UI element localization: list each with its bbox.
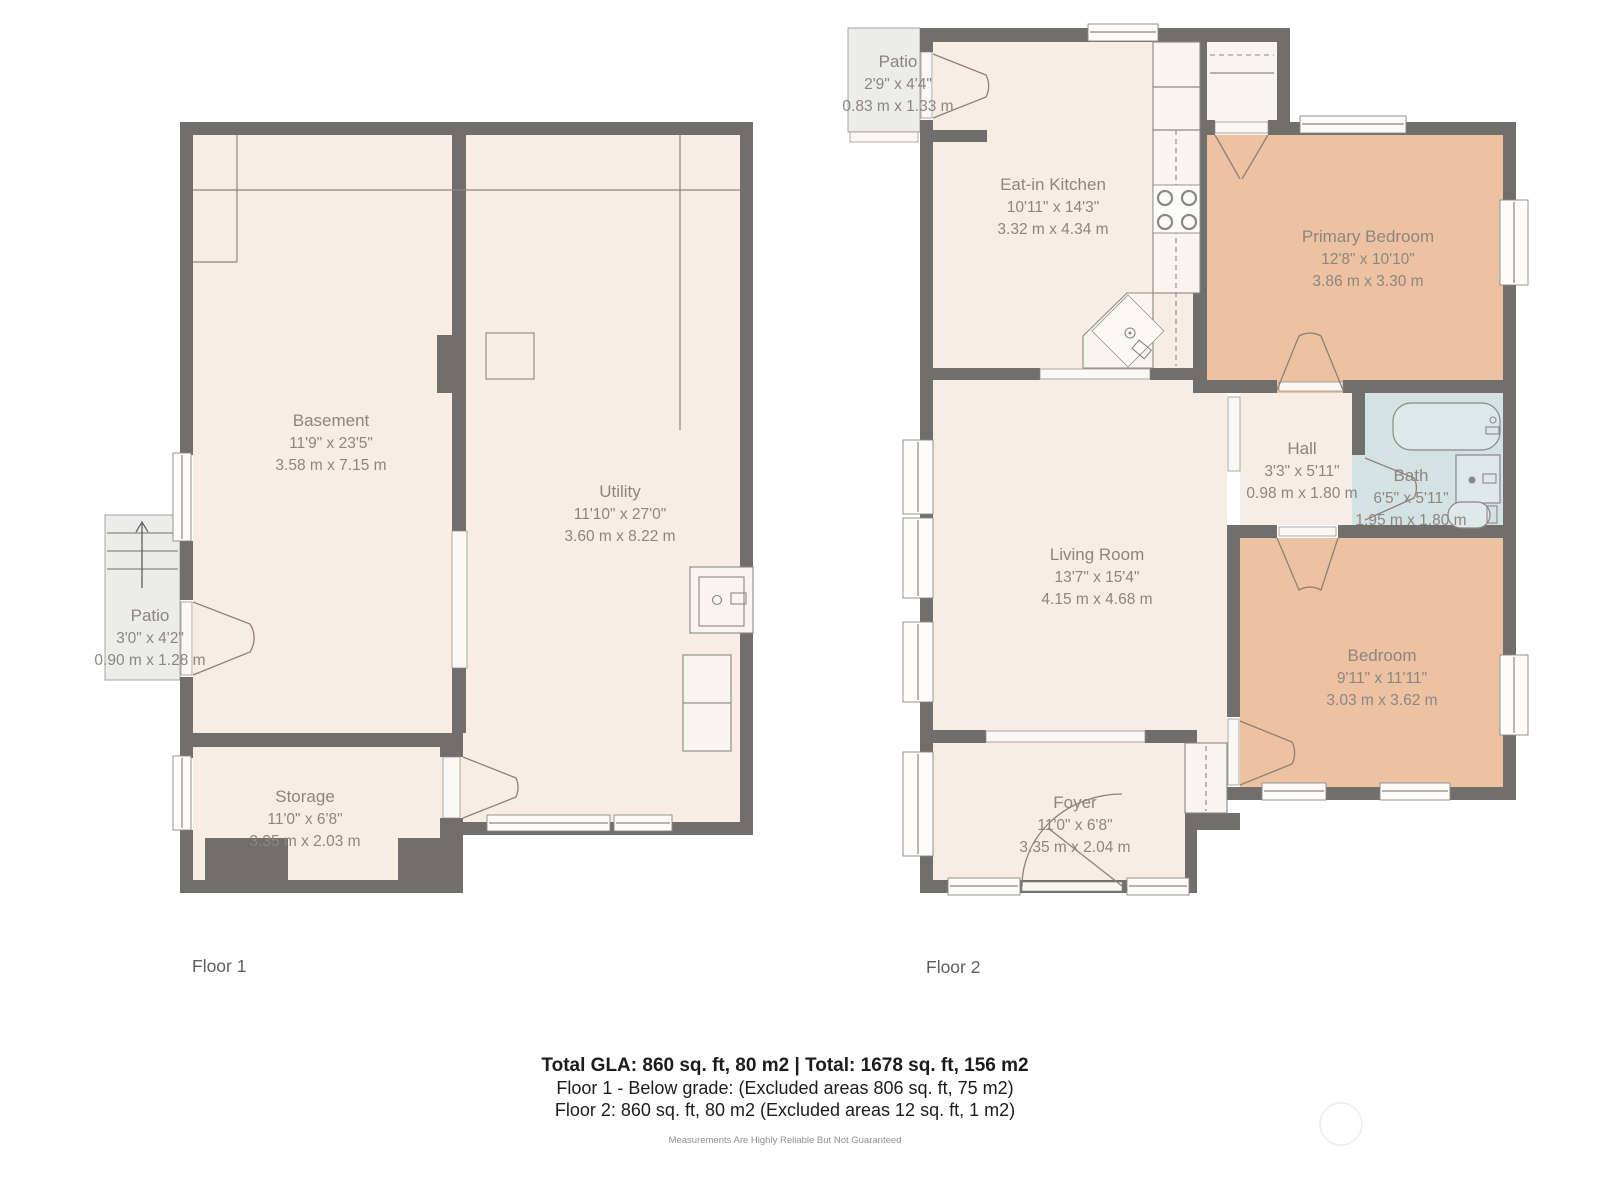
washer-dryer-icon bbox=[683, 655, 731, 751]
room-label-primary-bedroom: Primary Bedroom 12'8" x 10'10" 3.86 m x … bbox=[1302, 225, 1434, 293]
room-label-patio-floor2: Patio 2'9" x 4'4" 0.83 m x 1.33 m bbox=[842, 50, 953, 118]
closet-floor bbox=[1207, 42, 1277, 135]
footer-floor1-note: Floor 1 - Below grade: (Excluded areas 8… bbox=[0, 1077, 1570, 1099]
foyer-closet bbox=[1185, 743, 1227, 813]
floor2-plan bbox=[848, 24, 1528, 895]
furnace-icon bbox=[486, 333, 534, 379]
floor1-label: Floor 1 bbox=[192, 956, 246, 977]
room-label-bedroom: Bedroom 9'11" x 11'11" 3.03 m x 3.62 m bbox=[1326, 644, 1437, 712]
room-label-patio-floor1: Patio 3'0" x 4'2" 0.90 m x 1.28 m bbox=[94, 604, 205, 672]
footer-total-gla: Total GLA: 860 sq. ft, 80 m2 | Total: 16… bbox=[0, 1055, 1570, 1077]
room-label-utility: Utility 11'10" x 27'0" 3.60 m x 8.22 m bbox=[564, 480, 675, 548]
footer-floor2-note: Floor 2: 860 sq. ft, 80 m2 (Excluded are… bbox=[0, 1099, 1570, 1121]
room-label-foyer: Foyer 11'0" x 6'8" 3.35 m x 2.04 m bbox=[1019, 791, 1130, 859]
floor2-label: Floor 2 bbox=[926, 957, 980, 978]
basement-utility-opening bbox=[452, 531, 467, 668]
room-label-kitchen: Eat-in Kitchen 10'11" x 14'3" 3.32 m x 4… bbox=[997, 173, 1108, 241]
room-label-living-room: Living Room 13'7" x 15'4" 4.15 m x 4.68 … bbox=[1041, 543, 1152, 611]
stove-icon bbox=[1153, 185, 1200, 233]
room-label-basement: Basement 11'9" x 23'5" 3.58 m x 7.15 m bbox=[275, 409, 386, 477]
floorplan-drawing bbox=[0, 0, 1600, 1200]
room-label-storage: Storage 11'0" x 6'8" 3.35 m x 2.03 m bbox=[249, 785, 360, 853]
bathtub-icon bbox=[1393, 403, 1500, 450]
floorplan-canvas: Basement 11'9" x 23'5" 3.58 m x 7.15 m U… bbox=[0, 0, 1600, 1200]
living-foyer-opening bbox=[986, 731, 1145, 742]
living-hall-opening bbox=[1228, 397, 1240, 471]
kitchen-living-opening bbox=[1040, 369, 1150, 379]
footer-disclaimer: Measurements Are Highly Reliable But Not… bbox=[0, 1135, 1570, 1146]
room-label-bath: Bath 6'5" x 5'11" 1.95 m x 1.80 m bbox=[1355, 464, 1466, 532]
room-label-hall: Hall 3'3" x 5'11" 0.98 m x 1.80 m bbox=[1246, 437, 1357, 505]
laundry-sink-icon bbox=[690, 567, 753, 633]
footer: Total GLA: 860 sq. ft, 80 m2 | Total: 16… bbox=[0, 1055, 1570, 1146]
